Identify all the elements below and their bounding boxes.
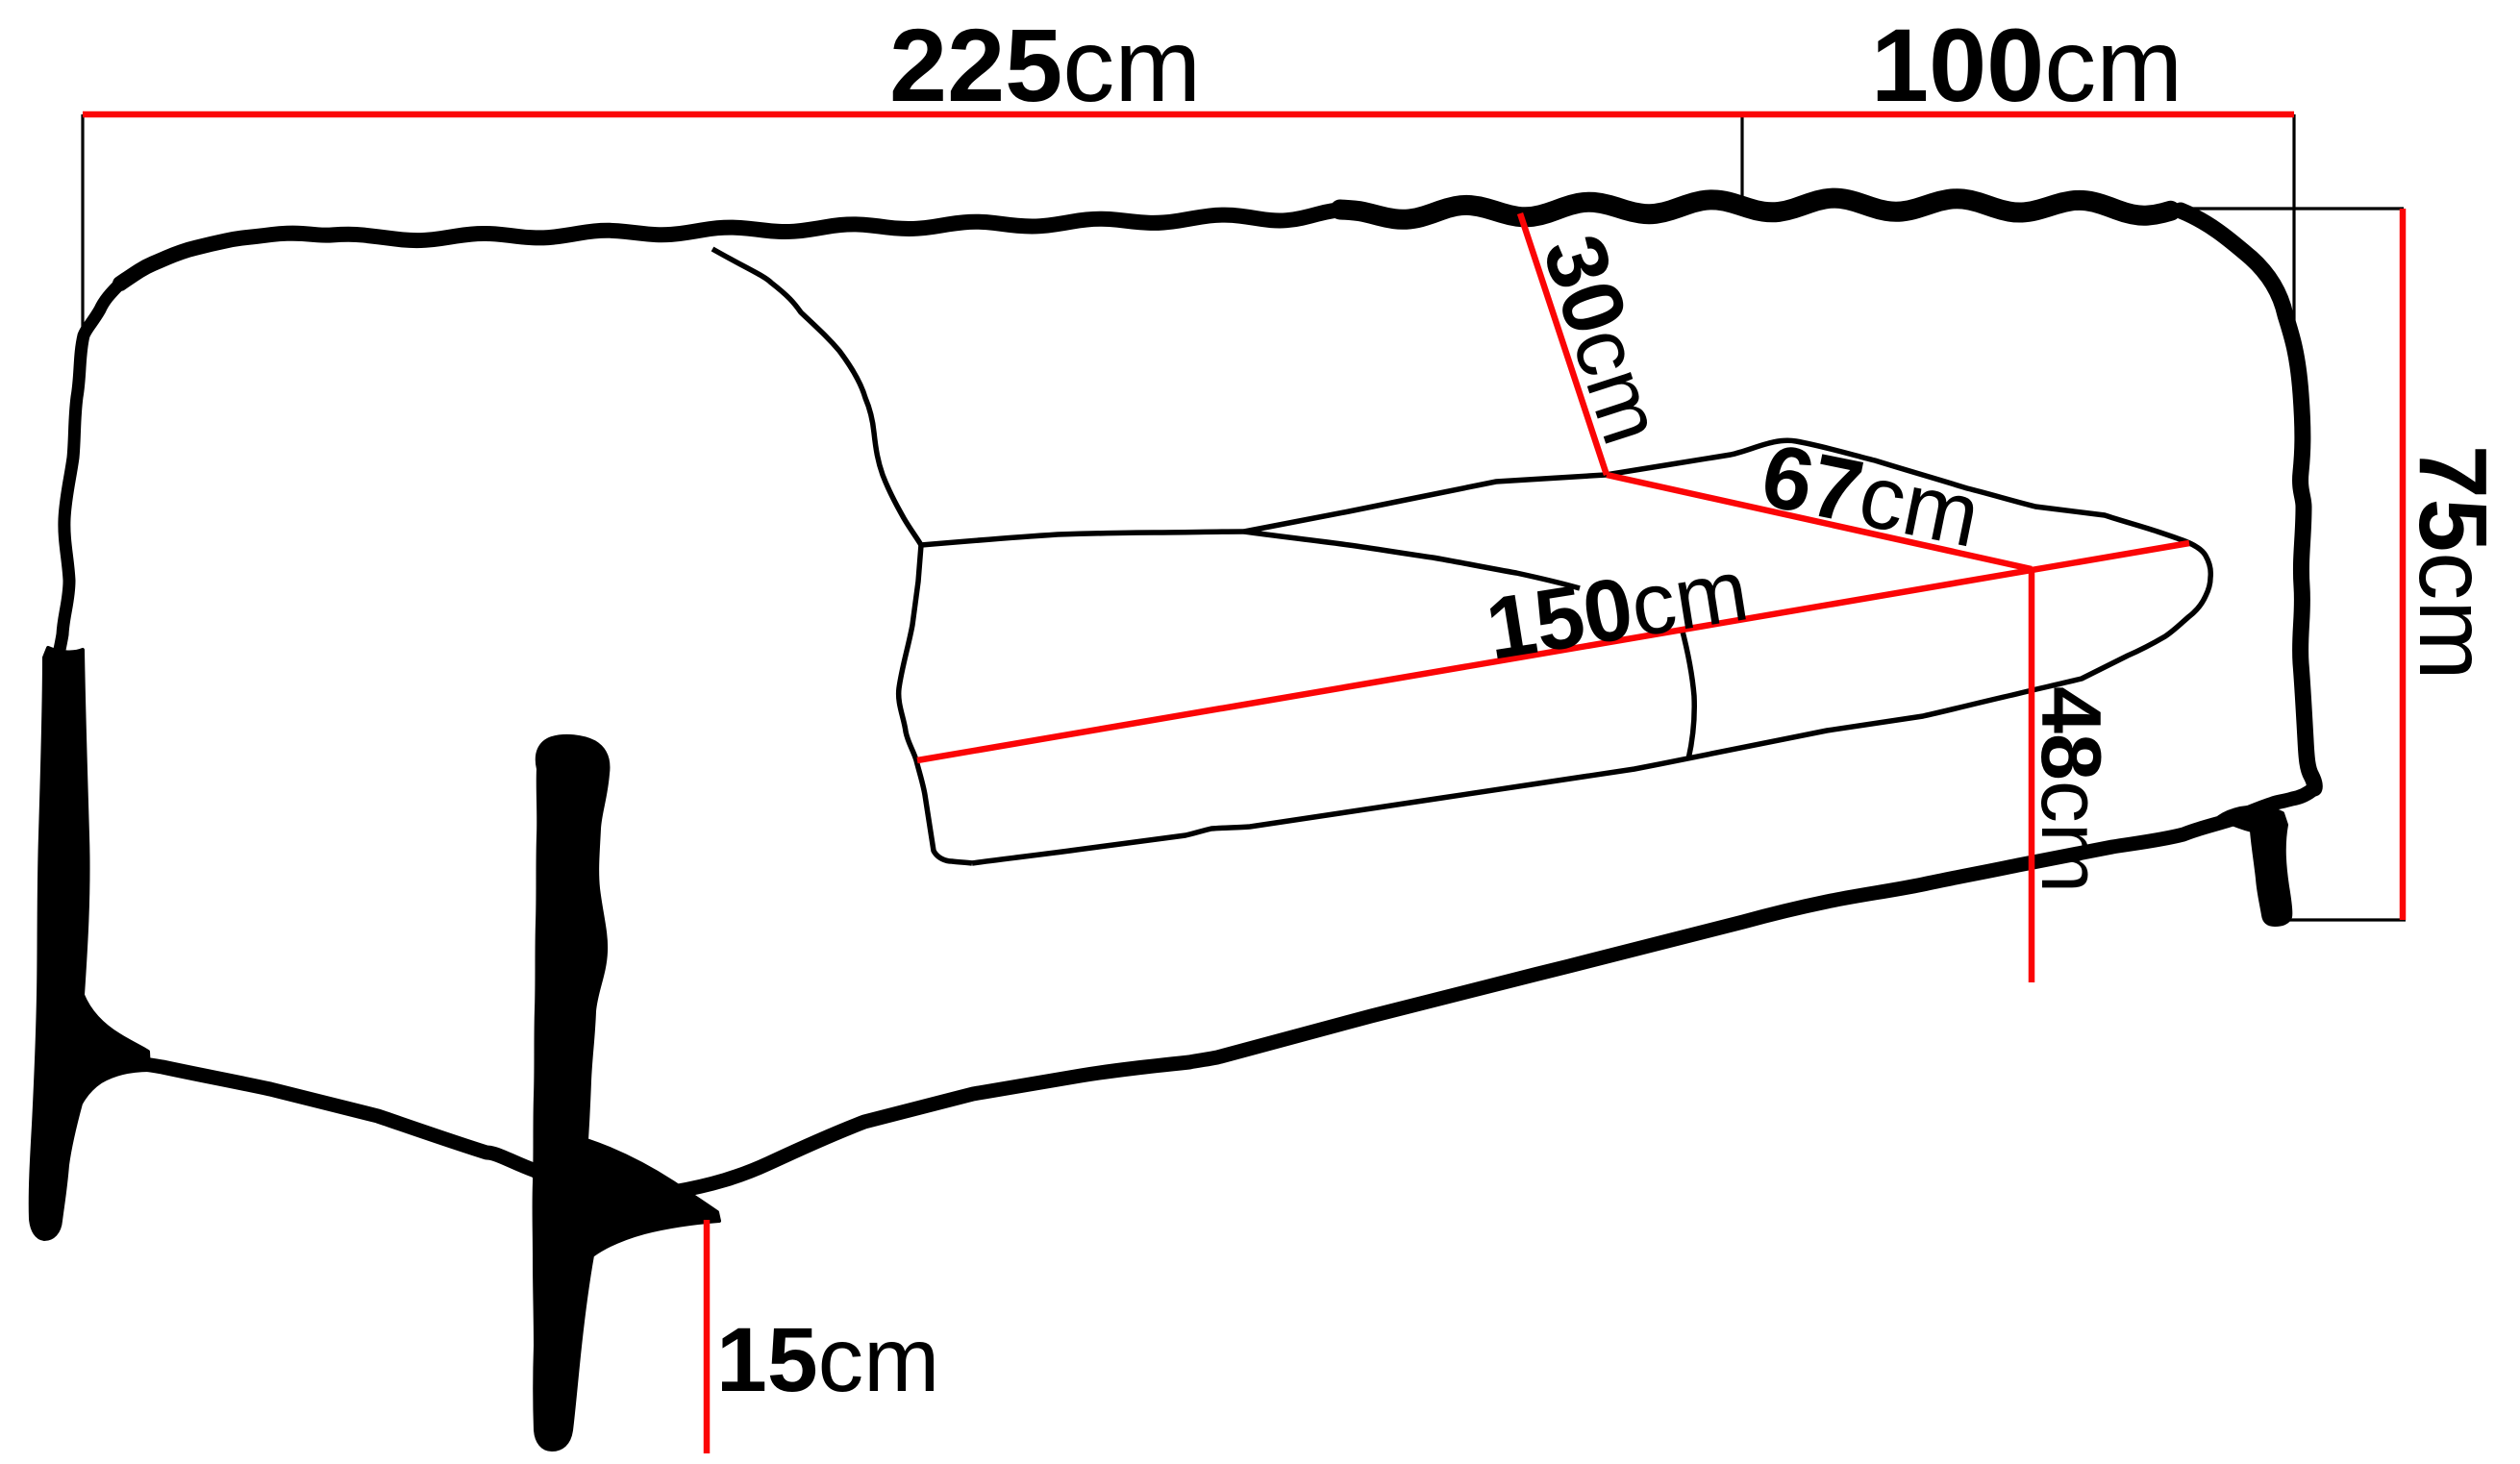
svg-text:100cm: 100cm: [1871, 7, 2183, 123]
svg-text:75cm: 75cm: [2399, 445, 2507, 681]
svg-text:48cm: 48cm: [2024, 686, 2119, 893]
svg-text:15cm: 15cm: [716, 1309, 939, 1411]
svg-text:225cm: 225cm: [889, 7, 1201, 123]
